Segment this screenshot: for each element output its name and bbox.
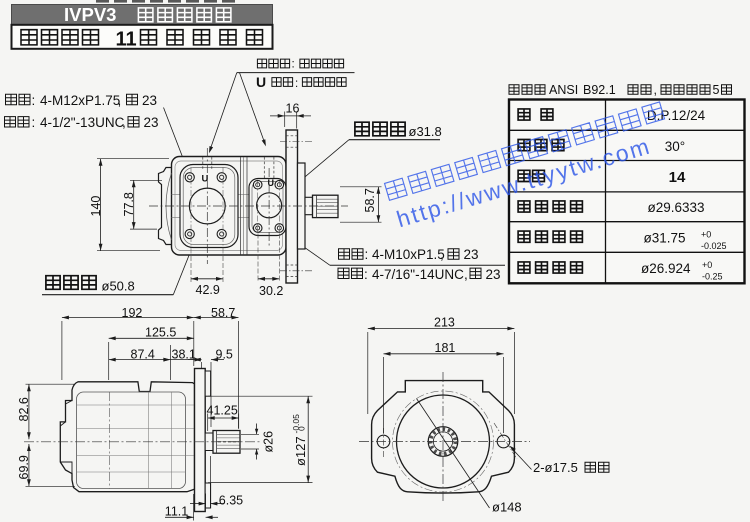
svg-text::: :: [365, 247, 369, 262]
svg-text:58.7: 58.7: [363, 188, 377, 212]
svg-text:16: 16: [286, 101, 300, 115]
svg-text:4-1/2"-13UNC: 4-1/2"-13UNC: [40, 115, 125, 130]
svg-text::: :: [292, 58, 295, 70]
svg-text:ø26.924: ø26.924: [641, 261, 691, 276]
svg-text::: :: [364, 267, 368, 282]
svg-text:11: 11: [116, 28, 137, 50]
svg-text:77.8: 77.8: [122, 192, 136, 216]
svg-text:,: ,: [440, 247, 444, 262]
svg-text:,: ,: [464, 267, 468, 282]
svg-text:ø127: ø127: [293, 436, 308, 466]
svg-text:ø26: ø26: [262, 431, 276, 453]
svg-text:U: U: [256, 74, 266, 90]
svg-text:ø31.8: ø31.8: [409, 124, 442, 139]
svg-text:ø148: ø148: [492, 500, 522, 515]
svg-text:4-M12xP1.75: 4-M12xP1.75: [40, 93, 120, 108]
svg-text:-0.025: -0.025: [701, 241, 727, 251]
svg-text::: :: [295, 78, 298, 90]
svg-text:23: 23: [144, 115, 159, 130]
svg-text:+0: +0: [702, 260, 712, 270]
svg-text:11.1: 11.1: [165, 504, 188, 518]
svg-text:+0: +0: [701, 230, 711, 240]
svg-text:69.9: 69.9: [17, 455, 31, 479]
svg-text:ANSI: ANSI: [549, 83, 578, 97]
svg-text:140: 140: [89, 196, 103, 217]
svg-text:6.35: 6.35: [219, 493, 243, 507]
svg-text:ø29.6333: ø29.6333: [647, 200, 704, 215]
svg-text::: :: [32, 93, 36, 108]
svg-text:213: 213: [434, 316, 455, 330]
svg-text:IVPV3: IVPV3: [64, 4, 116, 25]
svg-text:ø50.8: ø50.8: [102, 279, 135, 294]
svg-text:ø31.75: ø31.75: [644, 231, 686, 246]
svg-text:41.25: 41.25: [207, 404, 238, 418]
svg-text:38.1: 38.1: [172, 347, 196, 361]
svg-text:23: 23: [486, 267, 501, 282]
svg-text:23: 23: [464, 247, 479, 262]
svg-text:U: U: [268, 178, 275, 188]
svg-text:14: 14: [669, 169, 686, 186]
svg-text:9.5: 9.5: [216, 347, 233, 361]
svg-text:B92.1: B92.1: [583, 83, 616, 97]
svg-text:,: ,: [122, 115, 126, 130]
svg-text:-0.25: -0.25: [702, 272, 723, 282]
svg-text:-0.05: -0.05: [291, 414, 301, 434]
svg-text::: :: [32, 115, 36, 130]
svg-text:4-7/16"-14UNC: 4-7/16"-14UNC: [372, 267, 464, 282]
svg-text:23: 23: [142, 93, 157, 108]
svg-text:42.9: 42.9: [196, 283, 220, 297]
svg-text:,: ,: [118, 93, 122, 108]
svg-text:125.5: 125.5: [145, 326, 176, 340]
svg-text:87.4: 87.4: [131, 347, 155, 361]
svg-text:,: ,: [654, 83, 657, 97]
svg-text:181: 181: [435, 341, 456, 355]
svg-text:2-ø17.5: 2-ø17.5: [533, 460, 578, 475]
svg-text:192: 192: [122, 306, 143, 320]
svg-text:4-M10xP1.5: 4-M10xP1.5: [372, 247, 445, 262]
svg-text:82.6: 82.6: [17, 397, 31, 421]
svg-text:58.7: 58.7: [211, 306, 235, 320]
svg-text:30°: 30°: [665, 139, 685, 154]
svg-text:30.2: 30.2: [259, 284, 283, 298]
svg-text:5: 5: [713, 83, 720, 97]
